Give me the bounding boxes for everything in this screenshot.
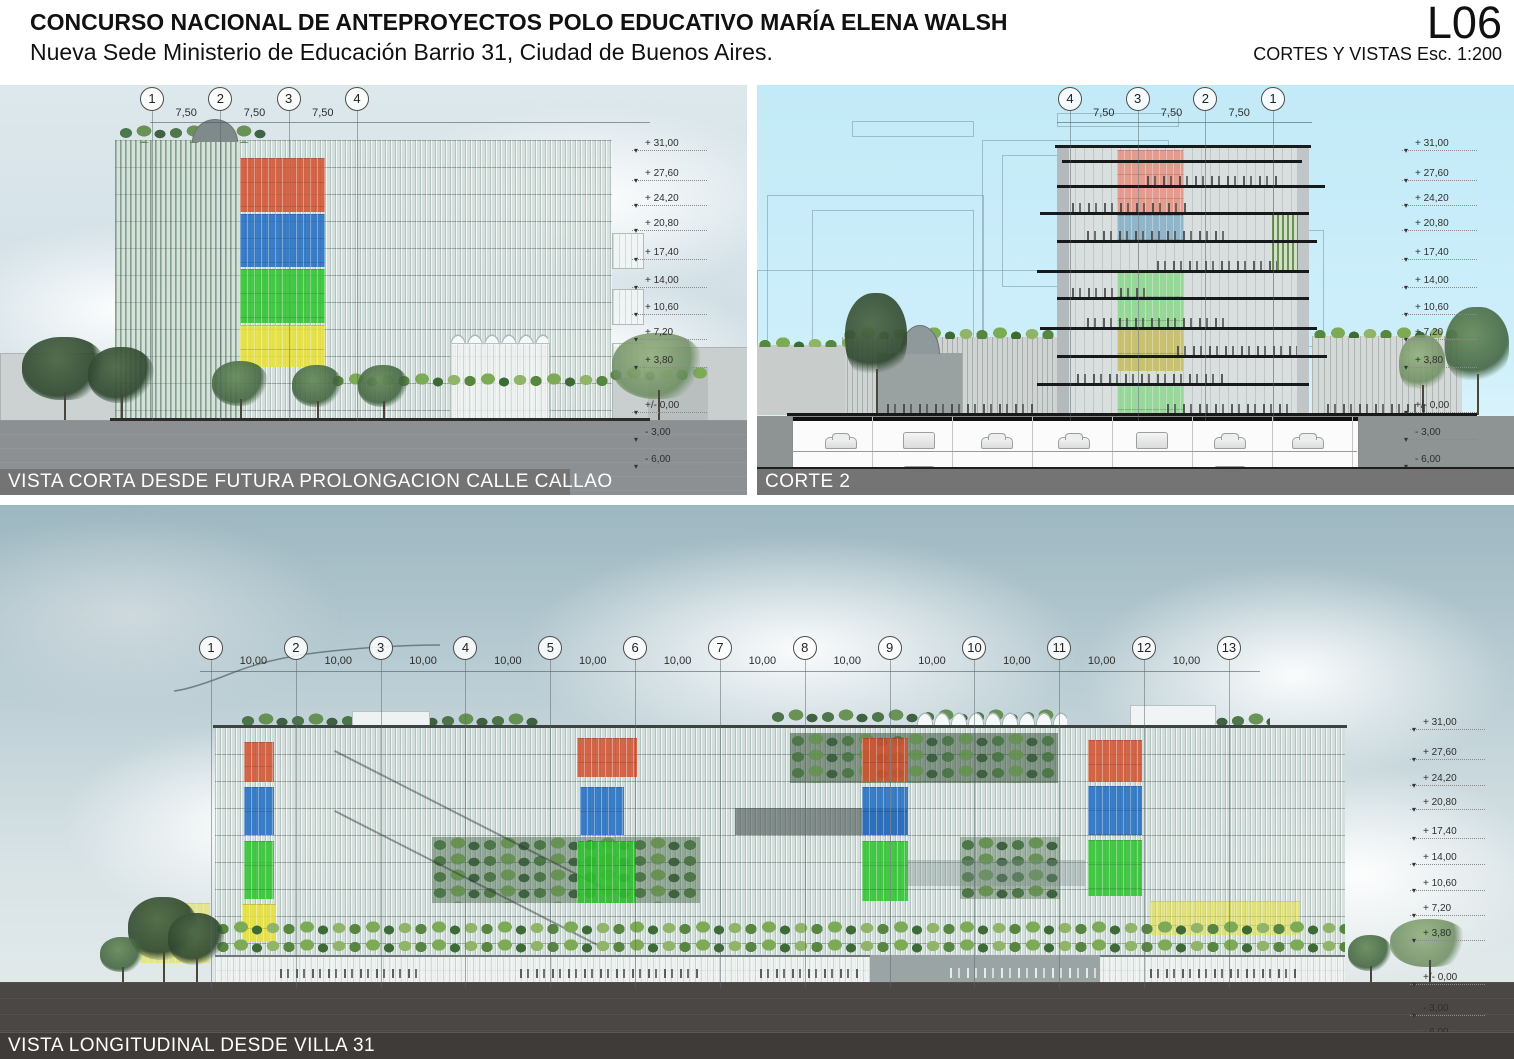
level-value: + 10,60 (645, 302, 679, 313)
level-value: + 7,20 (1415, 327, 1443, 338)
people-silhouettes (1072, 203, 1187, 212)
car-icon (1214, 437, 1246, 449)
floor-slab (1040, 212, 1309, 215)
people-silhouettes (1147, 176, 1277, 185)
dimension-text: 7,50 (152, 107, 220, 119)
level-marker: + 27,60 (632, 168, 707, 181)
floor-slab (1057, 185, 1325, 188)
section-panel-olive (1117, 329, 1183, 371)
base-planting (215, 919, 1345, 957)
floor-slab (1062, 160, 1302, 163)
level-value: +/- 0,00 (645, 400, 679, 411)
level-value: + 27,60 (1423, 747, 1457, 758)
people-silhouettes (760, 969, 860, 978)
level-marker: + 27,60 (1410, 747, 1485, 760)
level-marker: - 3,00 (1402, 427, 1477, 440)
level-value: + 14,00 (1415, 275, 1449, 286)
people-silhouettes (887, 404, 1037, 413)
level-marker: +/- 0,00 (632, 400, 707, 413)
dimension-text: 10,00 (805, 655, 890, 667)
level-value: + 17,40 (1415, 247, 1449, 258)
ground-line (110, 418, 650, 421)
panel-label: CORTE 2 (757, 467, 1514, 495)
level-value: + 31,00 (1423, 717, 1457, 728)
sheet-scale: CORTES Y VISTAS Esc. 1:200 (1253, 44, 1502, 65)
dimension-text: 7,50 (1070, 107, 1138, 119)
dimension-text: 10,00 (635, 655, 720, 667)
level-value: + 24,20 (1415, 193, 1449, 204)
level-value: + 3,80 (645, 355, 673, 366)
facade-panel-red (240, 158, 325, 212)
parking-level-1 (802, 425, 1347, 449)
dimension-text: 10,00 (465, 655, 550, 667)
dimension-text: 7,50 (220, 107, 288, 119)
level-markers: + 31,00+ 27,60+ 24,20+ 20,80+ 17,40+ 14,… (1410, 505, 1490, 1059)
level-marker: + 7,20 (1402, 327, 1477, 340)
grid-dimensions: 7,507,507,50 (1070, 107, 1273, 119)
level-value: + 20,80 (1423, 797, 1457, 808)
car-icon (1058, 437, 1090, 449)
sheet-header: CONCURSO NACIONAL DE ANTEPROYECTOS POLO … (0, 0, 1514, 85)
level-marker: + 3,80 (1410, 928, 1485, 941)
level-value: + 24,20 (1423, 773, 1457, 784)
dimension-text: 10,00 (720, 655, 805, 667)
grid-dimensions: 7,507,507,50 (152, 107, 357, 119)
facade-panel-blue (1088, 786, 1142, 835)
level-marker: - 6,00 (1402, 454, 1477, 467)
basement-floor-line (792, 451, 1357, 452)
level-marker: + 3,80 (632, 355, 707, 368)
level-value: + 17,40 (645, 247, 679, 258)
dimension-text: 10,00 (1144, 655, 1229, 667)
level-marker: - 3,00 (632, 427, 707, 440)
people-silhouettes (280, 969, 420, 978)
facade-panel-green (240, 269, 325, 323)
level-value: +/- 0,00 (1415, 400, 1449, 411)
level-marker: - 3,00 (1410, 1003, 1485, 1016)
level-marker: + 31,00 (1402, 138, 1477, 151)
dimension-line (200, 671, 1260, 672)
level-marker: + 17,40 (1402, 247, 1477, 260)
level-value: + 3,80 (1415, 355, 1443, 366)
podium-green-roof (757, 335, 845, 347)
people-silhouettes (1150, 969, 1300, 978)
level-markers: + 31,00+ 27,60+ 24,20+ 20,80+ 17,40+ 14,… (1402, 85, 1482, 495)
dimension-text: 10,00 (974, 655, 1059, 667)
level-value: +/- 0,00 (1423, 972, 1457, 983)
car-icon (981, 437, 1013, 449)
level-marker: + 7,20 (632, 327, 707, 340)
people-silhouettes (1157, 261, 1277, 270)
parapet-line (213, 725, 1347, 728)
level-marker: +/- 0,00 (1410, 972, 1485, 985)
level-marker: + 31,00 (632, 138, 707, 151)
facade-panel-green (244, 841, 274, 899)
dimension-text: 10,00 (1059, 655, 1144, 667)
tree (845, 293, 907, 415)
level-value: + 14,00 (645, 275, 679, 286)
floor-slab (1057, 297, 1309, 300)
tree (292, 365, 342, 423)
level-marker: + 14,00 (632, 275, 707, 288)
level-marker: + 10,60 (632, 302, 707, 315)
facade-panel-blue (580, 787, 624, 835)
level-marker: + 24,20 (632, 193, 707, 206)
level-marker: + 14,00 (1410, 852, 1485, 865)
facade-panel-red (577, 738, 637, 777)
level-value: + 27,60 (1415, 168, 1449, 179)
dimension-text: 10,00 (890, 655, 975, 667)
sheet-title: CONCURSO NACIONAL DE ANTEPROYECTOS POLO … (30, 9, 1008, 36)
green-wall (790, 733, 1058, 783)
level-marker: + 14,00 (1402, 275, 1477, 288)
level-markers: + 31,00+ 27,60+ 24,20+ 20,80+ 17,40+ 14,… (632, 85, 712, 495)
dimension-text: 10,00 (550, 655, 635, 667)
car-icon (903, 432, 935, 449)
floor-slab (1037, 383, 1309, 386)
level-marker: + 20,80 (632, 218, 707, 231)
panel-vista-corta: 1234 7,507,507,50 + 31,00+ 27,60+ 24,20+… (0, 85, 747, 495)
level-marker: + 17,40 (632, 247, 707, 260)
level-value: + 24,20 (645, 193, 679, 204)
floor-slab (1057, 240, 1317, 243)
roof-skylights (917, 711, 1067, 725)
dimension-text: 7,50 (1205, 107, 1273, 119)
level-marker: + 31,00 (1410, 717, 1485, 730)
dimension-text: 7,50 (1138, 107, 1206, 119)
level-value: - 3,00 (1415, 427, 1441, 438)
level-marker: + 3,80 (1402, 355, 1477, 368)
facade-panel-red (862, 738, 908, 782)
dimension-text: 7,50 (289, 107, 357, 119)
floor-slab (1057, 355, 1327, 358)
sheet-code: L06 (1427, 0, 1502, 46)
people-silhouettes (1072, 288, 1152, 297)
level-marker: + 10,60 (1410, 878, 1485, 891)
people-silhouettes (950, 968, 1100, 978)
level-marker: - 6,00 (632, 454, 707, 467)
level-value: + 10,60 (1423, 878, 1457, 889)
car-icon (1136, 432, 1168, 449)
level-value: - 6,00 (645, 454, 671, 465)
sheet-subtitle: Nueva Sede Ministerio de Educación Barri… (30, 39, 773, 66)
panel-corte-2: 4321 7,507,507,50 + 31,00+ 27,60+ 24,20+… (757, 85, 1514, 495)
level-value: + 3,80 (1423, 928, 1451, 939)
facade-panel-green (577, 841, 635, 903)
level-marker: + 7,20 (1410, 903, 1485, 916)
grid-dimensions: 10,0010,0010,0010,0010,0010,0010,0010,00… (211, 655, 1229, 667)
recessed-band (905, 860, 1085, 886)
car-icon (1292, 437, 1324, 449)
level-value: + 7,20 (645, 327, 673, 338)
level-value: + 7,20 (1423, 903, 1451, 914)
panel-vista-longitudinal: 12345678910111213 10,0010,0010,0010,0010… (0, 505, 1514, 1059)
level-value: + 20,80 (1415, 218, 1449, 229)
car-icon (825, 437, 857, 449)
tree (1348, 935, 1392, 985)
facade-panel-red (1088, 740, 1142, 782)
facade-panel-blue (862, 787, 908, 835)
facade-panel-blue (244, 787, 274, 835)
people-silhouettes (1177, 346, 1297, 355)
facade-panel-red (244, 742, 274, 782)
panel-label: VISTA LONGITUDINAL DESDE VILLA 31 (0, 1032, 1514, 1059)
tree (100, 937, 144, 985)
podium (757, 345, 845, 415)
dimension-text: 10,00 (296, 655, 381, 667)
level-value: + 14,00 (1423, 852, 1457, 863)
tree (168, 913, 224, 985)
level-marker: +/- 0,00 (1402, 400, 1477, 413)
tree (88, 347, 154, 425)
level-value: + 10,60 (1415, 302, 1449, 313)
facade-panel-green (862, 841, 908, 901)
facade-panel-green (1088, 840, 1142, 896)
level-value: + 31,00 (645, 138, 679, 149)
level-value: + 31,00 (1415, 138, 1449, 149)
floor-slab (1037, 270, 1309, 273)
level-marker: + 24,20 (1410, 773, 1485, 786)
floor-slab (1040, 327, 1317, 330)
context-wireframe (852, 121, 974, 137)
panel-label: VISTA CORTA DESDE FUTURA PROLONGACION CA… (0, 469, 570, 495)
level-value: + 20,80 (645, 218, 679, 229)
level-marker: + 27,60 (1402, 168, 1477, 181)
level-value: - 6,00 (1415, 454, 1441, 465)
level-marker: + 24,20 (1402, 193, 1477, 206)
level-value: + 17,40 (1423, 826, 1457, 837)
level-marker: + 17,40 (1410, 826, 1485, 839)
dimension-text: 10,00 (211, 655, 296, 667)
level-value: + 27,60 (645, 168, 679, 179)
people-silhouettes (520, 969, 700, 978)
level-value: - 3,00 (1423, 1003, 1449, 1014)
dimension-text: 10,00 (381, 655, 466, 667)
level-marker: + 20,80 (1410, 797, 1485, 810)
level-value: - 3,00 (645, 427, 671, 438)
level-marker: + 20,80 (1402, 218, 1477, 231)
dimension-line (150, 122, 650, 123)
tree (358, 365, 408, 423)
facade-panel-blue (240, 214, 325, 267)
level-marker: + 10,60 (1402, 302, 1477, 315)
